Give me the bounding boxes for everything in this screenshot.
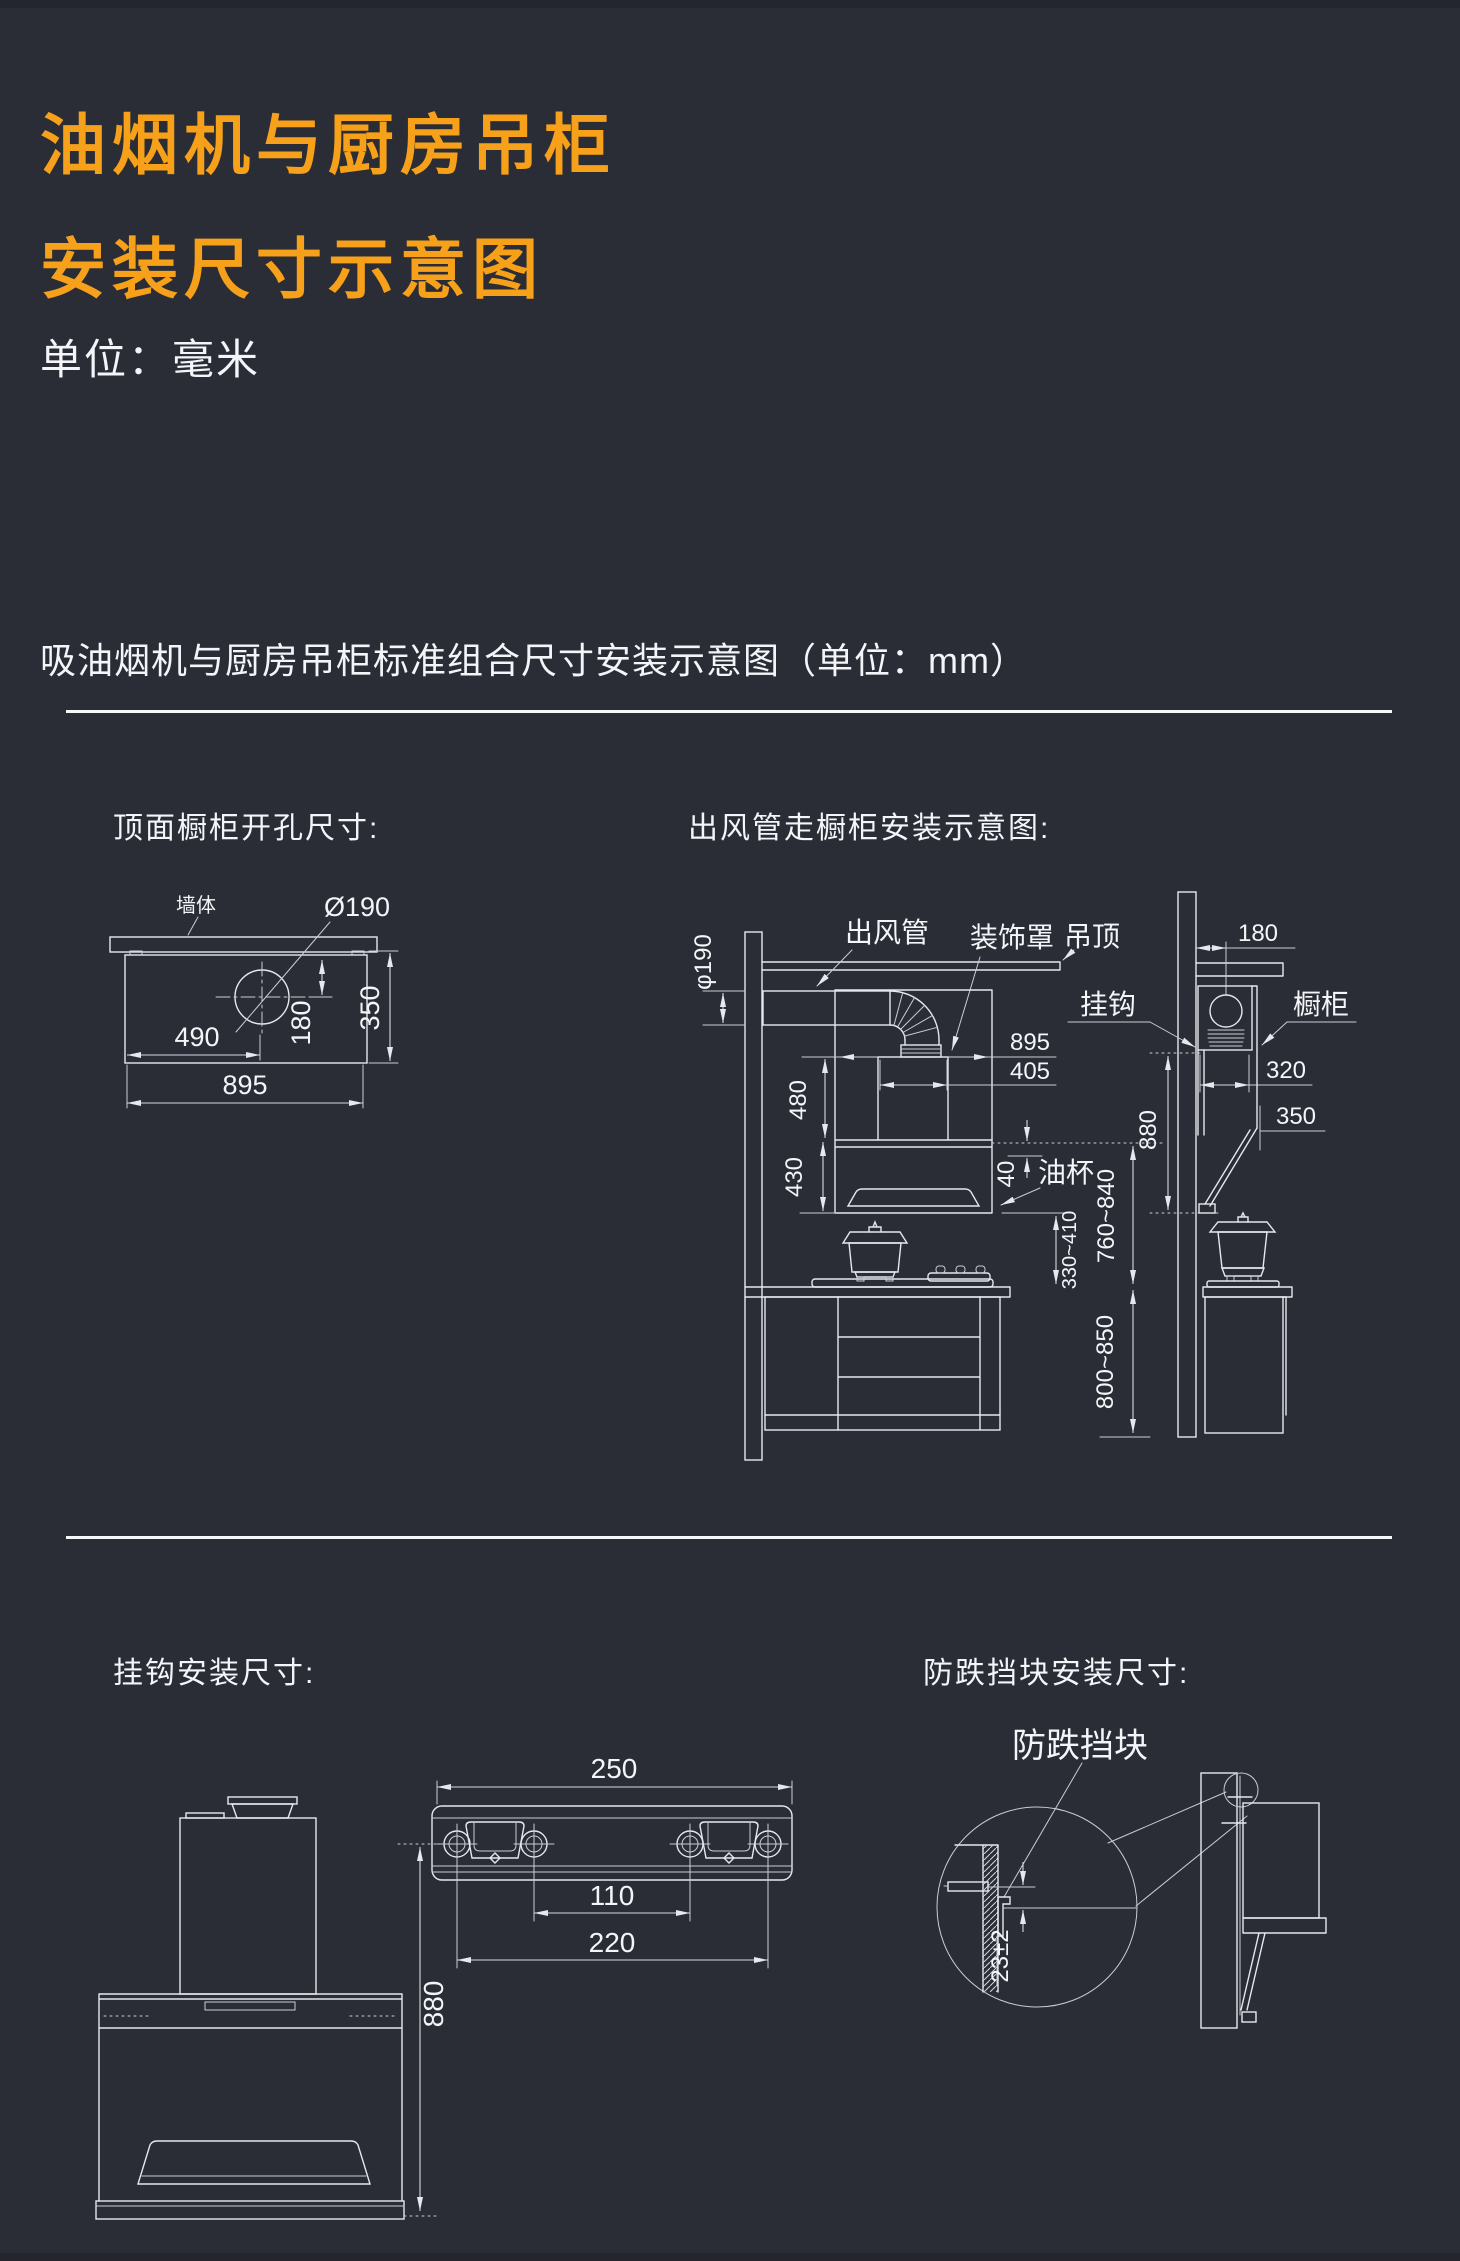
panel-hook-install: 250 110 220 880 [96,1753,792,2219]
dim-40: 40 [993,1161,1020,1188]
panel-block-install: 防跌挡块 23±2 [937,1727,1326,2028]
duct-label: 出风管 [845,917,929,948]
dim-220: 220 [589,1927,636,1958]
technical-drawing: Ø190 墙体 490 895 180 350 吊顶 [0,0,1460,2261]
dim-895-opening: 895 [222,1070,267,1100]
dim-895-hood: 895 [1010,1029,1050,1056]
block-label: 防跌挡块 [1012,1727,1148,1765]
dim-110: 110 [590,1880,635,1911]
dim-350-opening: 350 [355,985,385,1030]
cabinet-label: 橱柜 [1293,989,1349,1020]
dim-800-850: 800~850 [1092,1315,1119,1409]
dim-490: 490 [174,1022,219,1052]
dim-320: 320 [1266,1057,1306,1084]
dim-880-side: 880 [1135,1110,1162,1150]
dim-430: 430 [781,1157,808,1197]
dim-23: 23±2 [987,1929,1014,1982]
wall-label: 墙体 [176,894,216,917]
dim-330-410: 330~410 [1059,1211,1081,1289]
dim-250: 250 [591,1753,638,1784]
hook-label: 挂钩 [1080,989,1136,1020]
panel-top-opening: Ø190 墙体 490 895 180 350 [110,892,398,1108]
dim-760-840: 760~840 [1093,1169,1120,1263]
installation-diagram-page: 油烟机与厨房吊柜 安装尺寸示意图 单位：毫米 吸油烟机与厨房吊柜标准组合尺寸安装… [0,0,1460,2261]
dim-405: 405 [1010,1058,1050,1085]
hole-diameter-label: Ø190 [324,892,390,922]
dim-480: 480 [785,1080,812,1120]
dim-880-hook: 880 [418,1981,449,2028]
dim-350-depth: 350 [1276,1103,1316,1130]
dim-180-wall: 180 [1238,920,1278,947]
cover-label: 装饰罩 [970,922,1054,953]
dim-duct-dia: φ190 [690,934,717,990]
oil-cup-label: 油杯 [1038,1157,1094,1188]
panel-duct-route: 吊顶 出风管 装饰罩 φ190 [690,892,1356,1460]
dim-180: 180 [286,1000,316,1045]
ceiling-label: 吊顶 [1064,921,1120,952]
